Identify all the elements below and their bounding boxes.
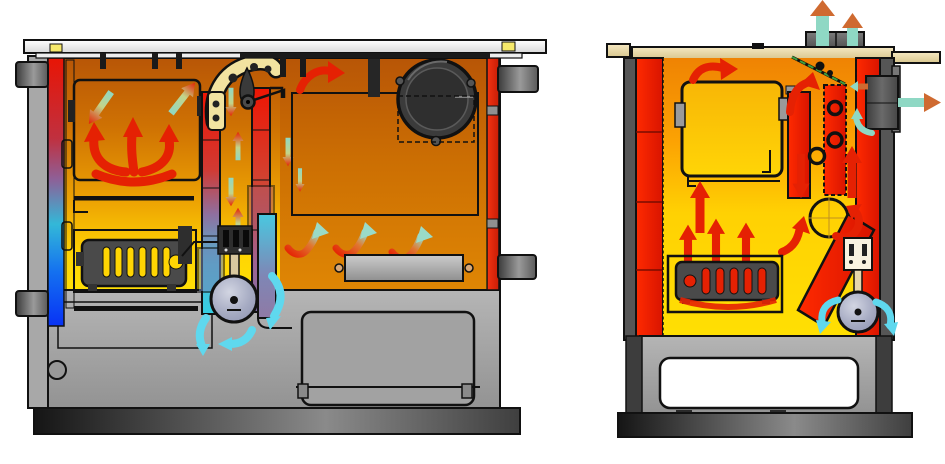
side-left-wall — [624, 58, 636, 340]
front-section-view — [16, 40, 546, 434]
gasket-right — [502, 42, 515, 51]
door-handle-right-top — [498, 66, 538, 92]
drawer-hinge-right — [462, 384, 472, 398]
stove-cutaway-diagram — [0, 0, 945, 464]
door-handle-left-top — [16, 62, 48, 87]
side-section-view — [607, 0, 941, 437]
flue-exit-arrow — [924, 93, 941, 112]
cover-plate — [345, 255, 463, 281]
oven-shelf-bar — [74, 196, 194, 201]
left-outer-wall — [28, 56, 48, 408]
side-left-red-panel — [636, 58, 663, 340]
side-base — [618, 336, 912, 437]
gasket-left — [50, 44, 62, 52]
door-handle-left-bottom — [16, 291, 48, 316]
diagram-stage — [0, 0, 945, 464]
oven-box-side — [675, 82, 789, 186]
ash-drawer — [302, 312, 474, 405]
base-opening — [660, 358, 858, 408]
drawer-hinge-left — [298, 384, 308, 398]
water-jacket-strip — [48, 58, 64, 326]
door-handle-right-bottom — [498, 255, 536, 279]
front-plinth — [34, 408, 520, 434]
oven-clip-left — [68, 100, 75, 122]
base-knob — [48, 361, 66, 379]
door-edge-strip — [487, 58, 499, 290]
side-plinth — [618, 413, 912, 437]
